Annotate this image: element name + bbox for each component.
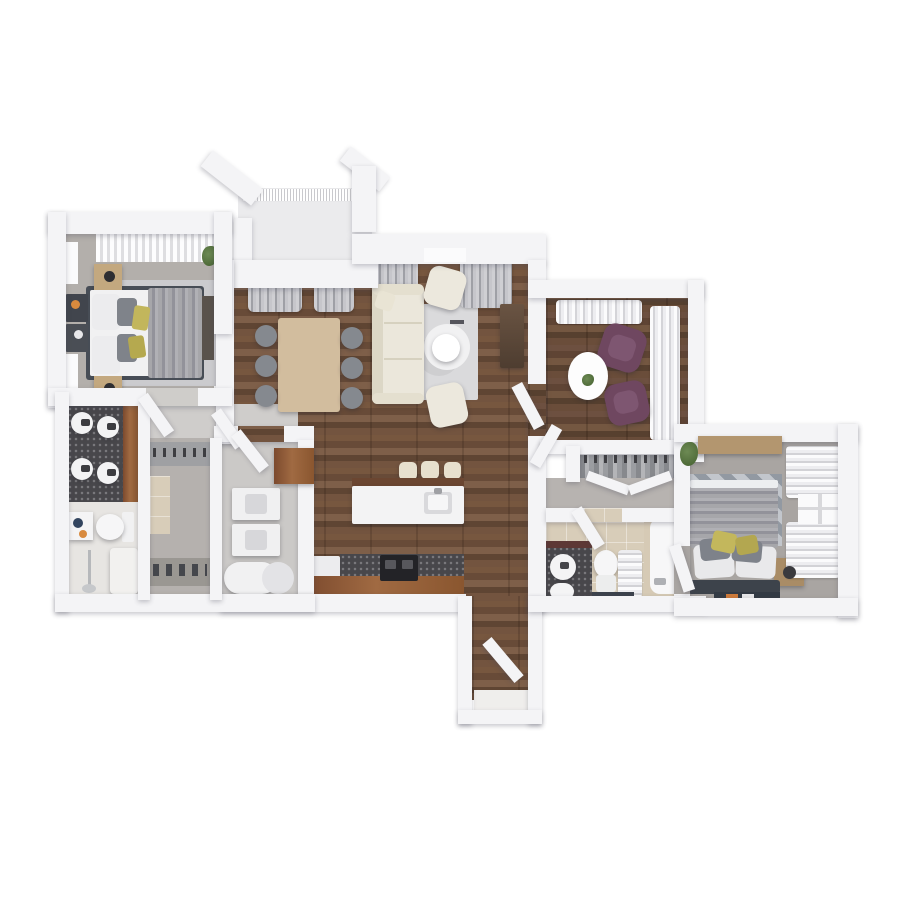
shower-pipe <box>88 550 91 588</box>
bedroom1-duvet <box>148 288 202 378</box>
bath1-closet-wall <box>138 404 150 600</box>
bath1-art-dot <box>73 518 83 528</box>
balcony-beam-left <box>201 150 264 205</box>
bath2-toilet-base <box>596 575 616 592</box>
entry-hall-east-wall <box>528 596 542 724</box>
bath1-faucet <box>107 423 116 430</box>
dining-table <box>278 318 340 412</box>
sofa-cushion-seam <box>384 358 422 360</box>
bedroom1-pillow-yellow <box>128 335 147 359</box>
towel-ladder <box>618 550 642 598</box>
dining-chair <box>255 385 277 407</box>
kitchen-faucet <box>434 488 442 494</box>
washer-door <box>245 494 267 514</box>
living-window-sill <box>424 248 466 262</box>
sofa-cushion-seam <box>384 322 422 324</box>
bedroom2-shelf <box>698 436 782 454</box>
den-curtain-right <box>650 306 680 440</box>
bedroom1-pillow-white <box>92 294 120 330</box>
media-console <box>500 304 524 368</box>
kitchen-island-edge <box>352 478 464 486</box>
bedroom1-pillow-white <box>92 336 120 374</box>
bath2-vanity-edge <box>546 541 592 548</box>
entry-hall-bottom-wall <box>458 710 542 724</box>
closet-wall-left <box>566 446 580 482</box>
pantry-cabinet <box>274 448 314 484</box>
bar-stool <box>444 462 461 479</box>
bedroom1-lamp <box>104 271 115 282</box>
lowerblock-left-wall <box>55 392 69 612</box>
bedroom2-pillow-yellow <box>735 534 760 556</box>
bar-stool <box>421 461 439 479</box>
bedroom1-window <box>66 242 78 284</box>
dining-chair <box>255 325 277 347</box>
closet-utility-wall <box>210 438 222 600</box>
entry-hall-west-wall <box>458 596 472 724</box>
walkin-shoes <box>153 564 207 576</box>
cooktop-grate <box>402 560 413 569</box>
den-top-wall <box>528 280 704 298</box>
bath1-art-dot <box>79 530 87 538</box>
bath2-faucet <box>560 562 569 569</box>
bath1-cabinet <box>123 406 138 502</box>
coffee-table <box>432 334 460 362</box>
bath2-toilet-bowl <box>594 550 618 578</box>
shower-head <box>82 584 96 593</box>
walkin-hangers <box>153 448 207 457</box>
bedroom1-art-dot <box>71 300 80 309</box>
bedroom1-blinds <box>96 230 214 262</box>
bath1-toilet-bowl <box>96 514 124 540</box>
bedroom1-art-dot <box>74 330 83 339</box>
bedroom1-top-wall <box>48 212 232 234</box>
dining-chair <box>255 355 277 377</box>
dining-chair <box>341 387 363 409</box>
closet-hangers <box>584 455 670 463</box>
bedroom2-sheet-fold <box>690 480 778 488</box>
floor-plan-render <box>0 0 900 900</box>
bathtub-faucet <box>654 578 666 585</box>
bedroom2-bottom-wall <box>674 598 858 616</box>
bedroom1-right-wall <box>214 212 232 334</box>
cooktop-grate <box>385 560 396 569</box>
bath1-faucet <box>81 465 90 472</box>
bath1-faucet <box>107 469 116 476</box>
lowerblock-bottom-wall <box>55 594 315 612</box>
bedroom2-curtain-top <box>786 446 840 498</box>
shower-tray <box>110 548 138 594</box>
sofa-arm-bottom <box>372 393 424 404</box>
dining-chair <box>341 357 363 379</box>
dryer-door <box>245 530 267 550</box>
bedroom1-pillow-yellow <box>131 305 150 331</box>
bedroom1-left-wall <box>48 212 66 408</box>
bedroom2-right-wall <box>838 424 858 618</box>
bath1-faucet <box>81 419 90 426</box>
balcony-bottom-wall <box>220 260 378 288</box>
balcony-pillar-right <box>352 166 376 232</box>
den-curtain-top <box>556 300 642 324</box>
bedroom2-nightstand-nook <box>783 566 796 579</box>
water-heater-end <box>262 562 294 594</box>
bedroom2-window-mullion <box>818 494 822 524</box>
kitchen-sink-basin <box>428 495 448 510</box>
remote <box>450 320 464 324</box>
entry-landing <box>474 690 528 712</box>
walkin-tile-wall <box>150 476 170 534</box>
dining-chair <box>341 327 363 349</box>
